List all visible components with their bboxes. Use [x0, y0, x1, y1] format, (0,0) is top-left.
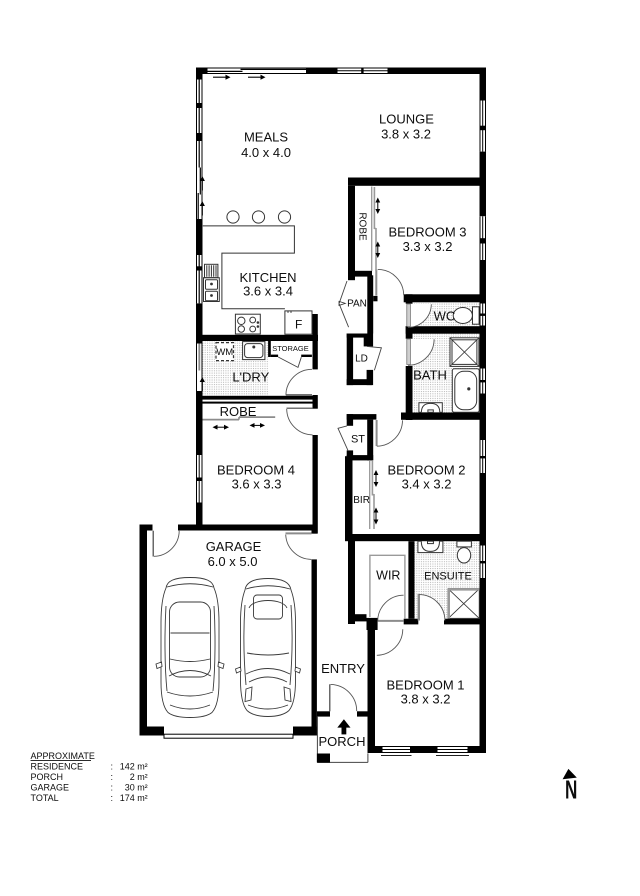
svg-text:174: 174: [120, 793, 135, 803]
svg-text:BATH: BATH: [413, 368, 447, 383]
svg-text:TOTAL: TOTAL: [31, 793, 59, 803]
svg-text:4.0 x 4.0: 4.0 x 4.0: [241, 145, 291, 160]
svg-text:LD: LD: [355, 354, 368, 365]
svg-text:BEDROOM 3: BEDROOM 3: [388, 224, 466, 239]
svg-text:3.8 x 3.2: 3.8 x 3.2: [381, 126, 431, 141]
svg-text:3.6 x 3.4: 3.6 x 3.4: [243, 283, 293, 298]
svg-text:m²: m²: [137, 761, 148, 771]
svg-text:PORCH: PORCH: [31, 772, 64, 782]
svg-text:2: 2: [130, 772, 135, 782]
svg-text:ROBE: ROBE: [357, 212, 368, 241]
svg-text:ENTRY: ENTRY: [321, 661, 365, 676]
svg-text:APPROXIMATE: APPROXIMATE: [31, 751, 95, 761]
svg-text:GARAGE: GARAGE: [31, 782, 70, 792]
svg-text:LOUNGE: LOUNGE: [379, 111, 434, 126]
svg-text:WM: WM: [216, 347, 233, 358]
svg-text::: :: [111, 772, 114, 782]
svg-text:BEDROOM 1: BEDROOM 1: [386, 678, 464, 693]
svg-text:3.3 x 3.2: 3.3 x 3.2: [403, 239, 453, 254]
svg-text:m²: m²: [137, 793, 148, 803]
svg-text::: :: [111, 793, 114, 803]
svg-text:MEALS: MEALS: [244, 129, 288, 144]
svg-text:ST: ST: [351, 434, 365, 446]
svg-text:3.6 x 3.3: 3.6 x 3.3: [232, 476, 282, 491]
svg-text:6.0 x 5.0: 6.0 x 5.0: [208, 554, 258, 569]
svg-text:BEDROOM 2: BEDROOM 2: [387, 462, 465, 477]
svg-text:BIR: BIR: [353, 495, 370, 506]
svg-text:ENSUITE: ENSUITE: [424, 571, 472, 583]
svg-text:GARAGE: GARAGE: [206, 539, 262, 554]
svg-text:m²: m²: [137, 782, 148, 792]
svg-text:STORAGE: STORAGE: [272, 344, 309, 353]
svg-text:142: 142: [120, 761, 135, 771]
svg-text:3.8 x 3.2: 3.8 x 3.2: [401, 691, 451, 706]
svg-text:F: F: [295, 318, 302, 332]
svg-text:30: 30: [125, 782, 135, 792]
svg-text:PORCH: PORCH: [319, 734, 366, 749]
svg-text:WC: WC: [434, 309, 456, 324]
svg-text::: :: [111, 761, 114, 771]
svg-text:N: N: [565, 775, 577, 804]
svg-text:RESIDENCE: RESIDENCE: [31, 761, 84, 771]
svg-text:WIR: WIR: [376, 569, 400, 583]
svg-text:3.4 x 3.2: 3.4 x 3.2: [402, 476, 452, 491]
svg-text:m²: m²: [137, 772, 148, 782]
svg-text:L'DRY: L'DRY: [232, 369, 269, 384]
svg-text:ROBE: ROBE: [220, 404, 257, 419]
svg-text:PAN: PAN: [347, 298, 367, 309]
svg-text:BEDROOM 4: BEDROOM 4: [217, 462, 295, 477]
svg-text::: :: [111, 782, 114, 792]
